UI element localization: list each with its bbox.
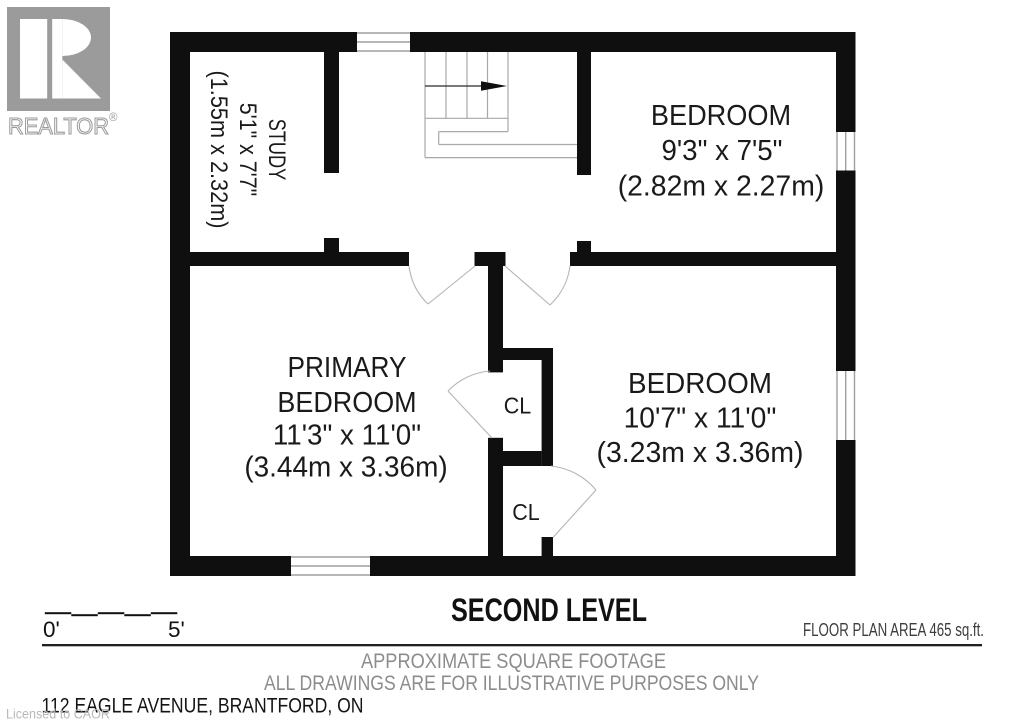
svg-text:11'3" x 11'0": 11'3" x 11'0": [273, 419, 421, 451]
svg-text:BEDROOM: BEDROOM: [628, 368, 772, 400]
svg-text:(1.55m x 2.32m): (1.55m x 2.32m): [205, 71, 232, 229]
svg-text:PRIMARY: PRIMARY: [288, 352, 407, 384]
svg-text:CL: CL: [512, 499, 540, 525]
svg-text:10'7" x 11'0": 10'7" x 11'0": [624, 403, 777, 435]
svg-text:BEDROOM: BEDROOM: [277, 387, 416, 419]
svg-text:Licensed to CAOR: Licensed to CAOR: [6, 707, 110, 722]
svg-text:5': 5': [168, 617, 185, 642]
svg-text:BEDROOM: BEDROOM: [651, 100, 791, 132]
svg-text:(2.82m x 2.27m): (2.82m x 2.27m): [618, 171, 825, 203]
svg-text:®: ®: [109, 112, 118, 124]
svg-text:SECOND LEVEL: SECOND LEVEL: [451, 592, 647, 628]
svg-text:0': 0': [43, 617, 60, 642]
svg-text:REALTOR: REALTOR: [8, 113, 109, 139]
svg-text:CL: CL: [504, 393, 532, 419]
svg-text:(3.44m x 3.36m): (3.44m x 3.36m): [244, 452, 447, 484]
svg-text:9'3" x 7'5": 9'3" x 7'5": [662, 135, 783, 167]
svg-text:STUDY: STUDY: [263, 119, 290, 181]
svg-text:(3.23m x 3.36m): (3.23m x 3.36m): [597, 437, 804, 469]
svg-text:5'1" x 7'7": 5'1" x 7'7": [234, 103, 261, 197]
svg-text:ALL DRAWINGS ARE FOR ILLUSTRAT: ALL DRAWINGS ARE FOR ILLUSTRATIVE PURPOS…: [264, 671, 759, 695]
svg-text:FLOOR PLAN AREA 465 sq.ft.: FLOOR PLAN AREA 465 sq.ft.: [803, 620, 984, 640]
svg-text:APPROXIMATE SQUARE FOOTAGE: APPROXIMATE SQUARE FOOTAGE: [361, 649, 666, 673]
